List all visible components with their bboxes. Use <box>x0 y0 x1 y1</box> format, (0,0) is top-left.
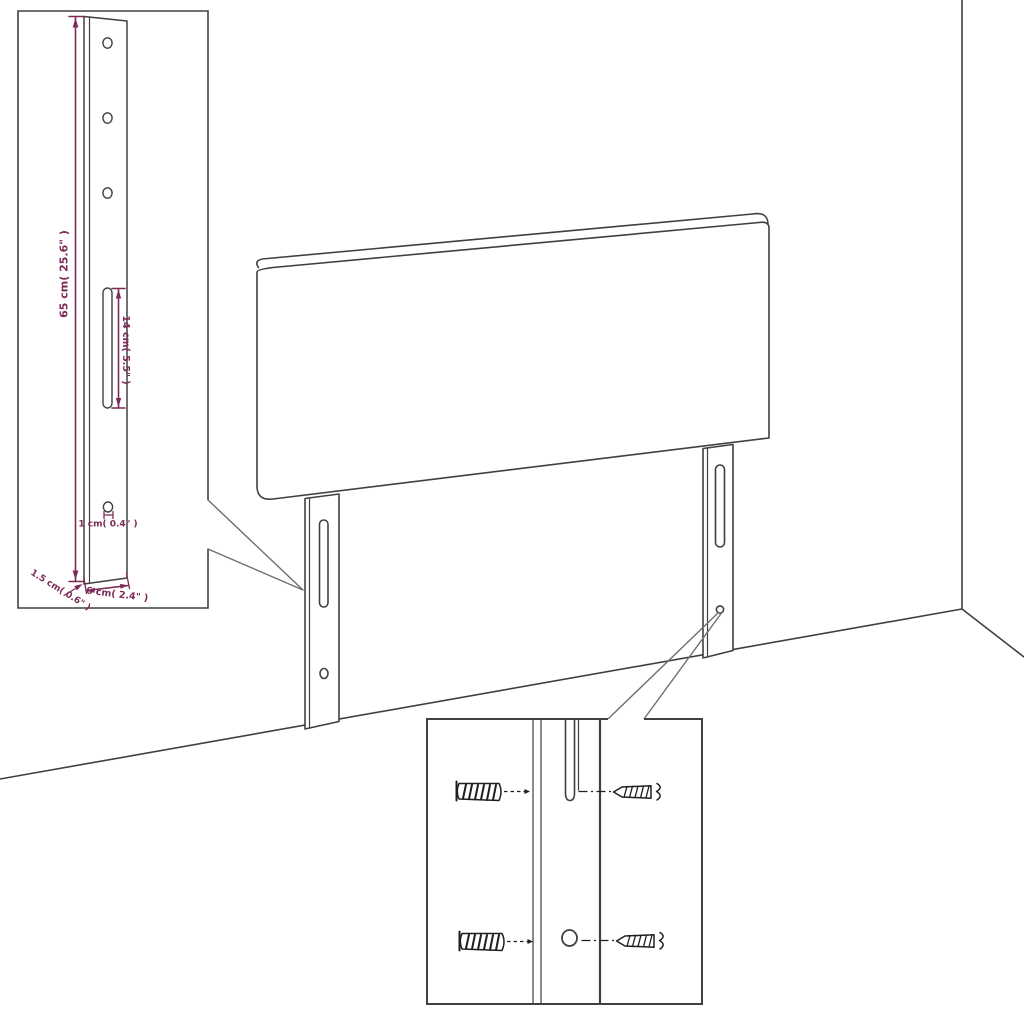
diagram-page: { "page": { "background": "#ffffff" }, "… <box>0 0 1024 1024</box>
bracket-figure <box>84 17 127 585</box>
detail-box-border <box>427 719 702 1004</box>
dimension-label-slot: 14 cm( 5.5" ) <box>120 315 130 384</box>
dimension-label-height: 65 cm( 25.6" ) <box>59 230 70 318</box>
headboard-leg-right <box>703 445 733 659</box>
callout-wedge-lines <box>208 500 303 590</box>
diagram-canvas <box>0 0 1024 1024</box>
panel-face <box>257 222 769 499</box>
inset-callout-wedge <box>208 500 303 590</box>
floor-line-right <box>962 609 1024 657</box>
headboard-panel <box>257 214 769 500</box>
bracket-body <box>84 17 127 585</box>
detail-callout-box <box>427 719 702 1004</box>
dimension-label-hole: 1 cm( 0.4" ) <box>78 521 137 530</box>
headboard-leg-left <box>305 494 339 729</box>
